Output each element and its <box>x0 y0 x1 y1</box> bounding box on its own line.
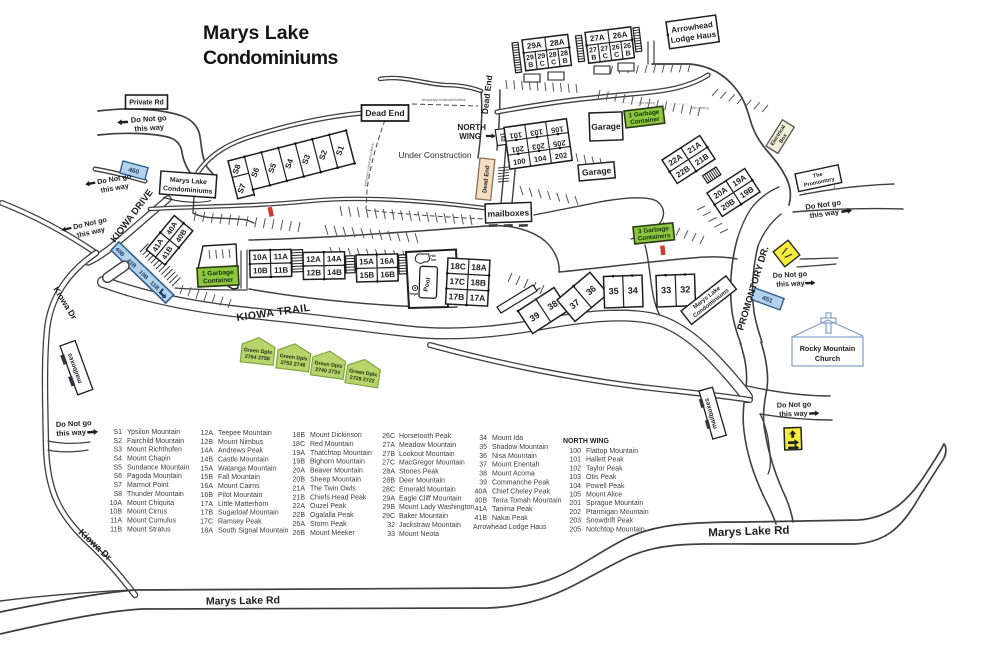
svg-text:Nakai Peak: Nakai Peak <box>492 515 528 522</box>
svg-text:B: B <box>528 62 534 70</box>
svg-text:29A: 29A <box>383 495 396 502</box>
svg-text:Commanche Peak: Commanche Peak <box>492 480 550 487</box>
svg-text:Marmot Point: Marmot Point <box>127 482 169 489</box>
svg-text:Ramsey Peak: Ramsey Peak <box>218 519 262 526</box>
svg-text:Meadow Mountain: Meadow Mountain <box>399 442 456 449</box>
svg-text:this way: this way <box>56 427 87 438</box>
svg-text:Fairchild Mountain: Fairchild Mountain <box>127 438 184 445</box>
svg-text:Marys Lake Rd: Marys Lake Rd <box>206 594 280 607</box>
svg-text:14B: 14B <box>201 457 214 464</box>
svg-text:Red Mountain: Red Mountain <box>310 441 354 448</box>
svg-text:Under Construction: Under Construction <box>398 150 472 160</box>
svg-text:104: 104 <box>533 153 547 164</box>
svg-text:15B: 15B <box>201 474 214 481</box>
svg-text:Mount Cumulus: Mount Cumulus <box>127 518 177 525</box>
svg-text:17C: 17C <box>449 276 465 287</box>
svg-text:Nisa Mountain: Nisa Mountain <box>492 453 537 460</box>
svg-text:19B: 19B <box>293 459 306 466</box>
svg-text:14A: 14A <box>201 448 214 455</box>
svg-text:15A: 15A <box>359 257 374 266</box>
svg-text:Terra Tomah Mountain: Terra Tomah Mountain <box>492 497 562 504</box>
svg-text:Mount Neota: Mount Neota <box>399 531 439 538</box>
svg-text:Sheep Mountain: Sheep Mountain <box>310 477 361 484</box>
svg-text:27C: 27C <box>382 460 395 467</box>
svg-text:10B: 10B <box>110 509 123 516</box>
svg-text:21B: 21B <box>293 494 306 501</box>
svg-text:Beaver Mountain: Beaver Mountain <box>310 468 363 475</box>
svg-text:21A: 21A <box>293 485 306 492</box>
svg-text:Ogalalla Peak: Ogalalla Peak <box>310 512 354 519</box>
svg-text:16A: 16A <box>380 257 395 266</box>
svg-text:40A: 40A <box>475 488 488 495</box>
svg-text:Private Rd: Private Rd <box>129 100 164 107</box>
svg-text:18A: 18A <box>201 527 214 534</box>
svg-text:18C: 18C <box>450 261 466 272</box>
svg-text:S3: S3 <box>113 447 122 454</box>
svg-text:Fall Mountain: Fall Mountain <box>218 474 260 481</box>
svg-text:11B: 11B <box>274 266 289 275</box>
svg-text:Powell Peak: Powell Peak <box>586 483 625 490</box>
svg-text:103: 103 <box>569 474 581 481</box>
svg-text:Ypsilon Mountain: Ypsilon Mountain <box>127 429 180 436</box>
svg-text:Little Matterhorn: Little Matterhorn <box>218 501 269 508</box>
svg-text:Lookout Mountain: Lookout Mountain <box>399 451 455 458</box>
svg-text:S8: S8 <box>113 491 122 498</box>
svg-text:33: 33 <box>387 531 395 538</box>
svg-text:Teepee Mountain: Teepee Mountain <box>218 430 272 437</box>
svg-text:41A: 41A <box>475 506 488 513</box>
svg-text:26: 26 <box>623 42 632 50</box>
svg-text:10A: 10A <box>110 500 123 507</box>
svg-text:Snowdrift Peak: Snowdrift Peak <box>586 518 634 525</box>
svg-text:Mount Stratus: Mount Stratus <box>127 526 171 533</box>
svg-text:Church: Church <box>815 354 840 363</box>
svg-text:28B: 28B <box>383 478 396 485</box>
svg-text:Mount Ida: Mount Ida <box>492 435 523 442</box>
svg-text:102: 102 <box>569 465 581 472</box>
svg-text:S4: S4 <box>113 456 122 463</box>
svg-text:soft parking: soft parking <box>639 101 656 105</box>
svg-text:17A: 17A <box>201 501 214 508</box>
svg-text:Flattop Mountain: Flattop Mountain <box>586 448 638 455</box>
svg-text:27A: 27A <box>383 442 396 449</box>
svg-text:Mount Enentah: Mount Enentah <box>492 462 540 469</box>
svg-text:S2: S2 <box>113 438 122 445</box>
svg-text:Pagoda Mountain: Pagoda Mountain <box>127 473 182 480</box>
svg-text:28A: 28A <box>383 469 396 476</box>
svg-text:33: 33 <box>661 285 671 295</box>
svg-text:28: 28 <box>560 50 569 58</box>
svg-text:Storm Peak: Storm Peak <box>310 521 347 528</box>
svg-text:Dead End: Dead End <box>365 108 404 118</box>
svg-text:WING: WING <box>459 132 481 141</box>
svg-text:this way: this way <box>779 409 808 419</box>
svg-text:Arrowhead Lodge Haus: Arrowhead Lodge Haus <box>473 524 547 531</box>
svg-text:18B: 18B <box>470 277 486 288</box>
svg-text:11A: 11A <box>274 252 289 261</box>
svg-text:C: C <box>551 59 557 67</box>
svg-text:26B: 26B <box>293 530 306 537</box>
svg-text:Emerald Mountain: Emerald Mountain <box>399 486 456 493</box>
svg-text:S1: S1 <box>113 429 122 436</box>
svg-text:Mount Meeker: Mount Meeker <box>310 530 355 537</box>
svg-text:this way: this way <box>776 278 805 288</box>
svg-text:17B: 17B <box>201 510 214 517</box>
svg-text:202: 202 <box>554 151 568 162</box>
svg-text:26A: 26A <box>612 30 628 41</box>
svg-text:101: 101 <box>569 457 581 464</box>
svg-text:34: 34 <box>628 285 638 295</box>
svg-text:B: B <box>562 58 568 66</box>
svg-text:29A: 29A <box>526 40 542 51</box>
svg-text:Mount Richthofen: Mount Richthofen <box>127 447 182 454</box>
svg-text:Mount Nimbus: Mount Nimbus <box>218 439 264 446</box>
svg-text:MacGregor Mountain: MacGregor Mountain <box>399 460 465 467</box>
svg-text:Shadow Mountain: Shadow Mountain <box>492 444 548 451</box>
svg-text:19A: 19A <box>293 450 306 457</box>
svg-text:10A: 10A <box>253 253 268 262</box>
svg-text:Mount Lady Washington: Mount Lady Washington <box>399 504 474 511</box>
svg-text:mailboxes: mailboxes <box>487 207 529 218</box>
svg-text:Baker Mountain: Baker Mountain <box>399 513 448 520</box>
svg-text:Otis Peak: Otis Peak <box>586 474 617 481</box>
svg-text:Mount Alice: Mount Alice <box>586 492 622 499</box>
svg-text:20B: 20B <box>293 477 306 484</box>
svg-text:Mount Acoma: Mount Acoma <box>492 471 535 478</box>
svg-text:C: C <box>602 53 608 61</box>
svg-text:14B: 14B <box>327 268 342 277</box>
svg-text:Stones Peak: Stones Peak <box>399 469 439 476</box>
svg-text:203: 203 <box>569 518 581 525</box>
svg-text:22B: 22B <box>293 512 306 519</box>
svg-text:Hallett Peak: Hallett Peak <box>586 457 624 464</box>
svg-text:Castle Mountain: Castle Mountain <box>218 457 269 464</box>
svg-text:Bighorn Mountain: Bighorn Mountain <box>310 459 365 466</box>
svg-text:36: 36 <box>479 453 487 460</box>
svg-text:105: 105 <box>569 492 581 499</box>
svg-text:28: 28 <box>549 51 558 59</box>
svg-text:12A: 12A <box>306 255 321 264</box>
svg-text:Taylor Peak: Taylor Peak <box>586 465 623 472</box>
svg-text:26C: 26C <box>382 433 395 440</box>
svg-text:Tanima Peak: Tanima Peak <box>492 506 533 513</box>
svg-text:Mount Dickinson: Mount Dickinson <box>310 432 362 439</box>
svg-text:201: 201 <box>569 500 581 507</box>
svg-text:Marys Lake: Marys Lake <box>203 22 309 44</box>
svg-text:temporary construction fence: temporary construction fence <box>422 98 466 102</box>
svg-text:Ptarmigan Mountain: Ptarmigan Mountain <box>586 509 649 516</box>
svg-text:12B: 12B <box>201 439 214 446</box>
svg-text:27: 27 <box>589 47 598 55</box>
svg-text:29: 29 <box>526 54 535 62</box>
svg-text:104: 104 <box>569 483 581 490</box>
svg-text:The Twin Owls: The Twin Owls <box>310 485 356 492</box>
svg-text:Rocky Mountain: Rocky Mountain <box>800 344 856 353</box>
svg-text:Mount Chiquita: Mount Chiquita <box>127 500 174 507</box>
svg-text:39: 39 <box>479 480 487 487</box>
svg-text:26A: 26A <box>293 521 306 528</box>
svg-text:29C: 29C <box>382 513 395 520</box>
svg-text:Watanga Mountain: Watanga Mountain <box>218 465 277 472</box>
svg-text:Tub: Tub <box>430 258 436 262</box>
svg-text:100: 100 <box>513 156 527 167</box>
svg-text:C: C <box>539 60 545 68</box>
svg-text:16B: 16B <box>201 492 214 499</box>
svg-text:38: 38 <box>479 471 487 478</box>
svg-text:B: B <box>625 50 631 58</box>
svg-text:29B: 29B <box>383 504 396 511</box>
svg-text:28A: 28A <box>549 37 565 48</box>
svg-text:dish parking: dish parking <box>691 106 708 110</box>
svg-text:29: 29 <box>537 53 546 61</box>
svg-text:15A: 15A <box>201 465 214 472</box>
svg-text:11A: 11A <box>110 518 122 525</box>
svg-text:12B: 12B <box>306 268 321 277</box>
svg-text:27: 27 <box>600 45 609 53</box>
svg-text:16A: 16A <box>201 483 214 490</box>
svg-text:Andrews Peak: Andrews Peak <box>218 448 264 455</box>
svg-text:Mount Chapin: Mount Chapin <box>127 456 171 463</box>
svg-text:17C: 17C <box>200 519 213 526</box>
svg-text:16B: 16B <box>380 270 395 279</box>
svg-text:Condominiums: Condominiums <box>203 47 338 69</box>
svg-text:Sugarloaf Mountain: Sugarloaf Mountain <box>218 510 279 517</box>
svg-text:27B: 27B <box>383 451 396 458</box>
svg-text:41B: 41B <box>475 515 488 522</box>
svg-text:100: 100 <box>569 448 581 455</box>
svg-text:22A: 22A <box>293 503 306 510</box>
svg-text:18C: 18C <box>292 441 305 448</box>
svg-text:Deer Mountain: Deer Mountain <box>399 478 445 485</box>
svg-text:34: 34 <box>479 435 487 442</box>
svg-text:26: 26 <box>612 44 621 52</box>
svg-text:Eagle Cliff Mountain: Eagle Cliff Mountain <box>399 495 462 502</box>
svg-text:27A: 27A <box>589 33 605 44</box>
svg-text:14A: 14A <box>327 254 342 263</box>
svg-text:Jackstraw Mountain: Jackstraw Mountain <box>399 522 461 529</box>
svg-text:32: 32 <box>680 284 690 294</box>
svg-text:Thatchtop Mountain: Thatchtop Mountain <box>310 450 372 457</box>
svg-text:10B: 10B <box>253 266 268 275</box>
svg-text:S7: S7 <box>113 482 122 489</box>
svg-text:28C: 28C <box>382 486 395 493</box>
svg-text:15B: 15B <box>359 271 374 280</box>
svg-text:20A: 20A <box>293 468 306 475</box>
svg-text:NORTH WING: NORTH WING <box>563 438 609 445</box>
svg-text:Ouzel Peak: Ouzel Peak <box>310 503 347 510</box>
svg-text:18A: 18A <box>471 262 487 273</box>
svg-text:Chiefs Head Peak: Chiefs Head Peak <box>310 494 367 501</box>
svg-text:South Signal Mountain: South Signal Mountain <box>218 527 289 534</box>
svg-text:Mount Cirrus: Mount Cirrus <box>127 509 168 516</box>
svg-text:S5: S5 <box>113 464 122 471</box>
svg-text:202: 202 <box>569 509 581 516</box>
svg-text:37: 37 <box>479 462 487 469</box>
svg-text:17B: 17B <box>448 291 464 302</box>
svg-text:205: 205 <box>569 526 581 533</box>
svg-text:32: 32 <box>387 522 395 529</box>
svg-text:Sundance Mountain: Sundance Mountain <box>127 464 189 471</box>
svg-text:Garage: Garage <box>591 121 621 132</box>
svg-text:Pilot Mountain: Pilot Mountain <box>218 492 262 499</box>
svg-text:18B: 18B <box>293 432 306 439</box>
svg-text:Notchtop Mountain: Notchtop Mountain <box>586 526 645 533</box>
svg-text:11B: 11B <box>110 526 122 533</box>
svg-text:B: B <box>591 54 597 62</box>
svg-text:Mount Cairns: Mount Cairns <box>218 483 260 490</box>
svg-text:C: C <box>614 52 620 60</box>
svg-text:Thunder Mountain: Thunder Mountain <box>127 491 184 498</box>
svg-text:Chief Cheley Peak: Chief Cheley Peak <box>492 488 550 495</box>
svg-text:12A: 12A <box>201 430 214 437</box>
svg-text:35: 35 <box>479 444 487 451</box>
svg-text:17A: 17A <box>469 292 485 303</box>
svg-text:S6: S6 <box>113 473 122 480</box>
svg-text:Sprague Mountain: Sprague Mountain <box>586 500 643 507</box>
svg-text:35: 35 <box>608 286 618 296</box>
svg-text:Horsetooth Peak: Horsetooth Peak <box>399 433 452 440</box>
svg-text:Firepit: Firepit <box>408 292 419 296</box>
svg-text:NORTH: NORTH <box>458 123 487 132</box>
svg-text:40B: 40B <box>475 497 488 504</box>
